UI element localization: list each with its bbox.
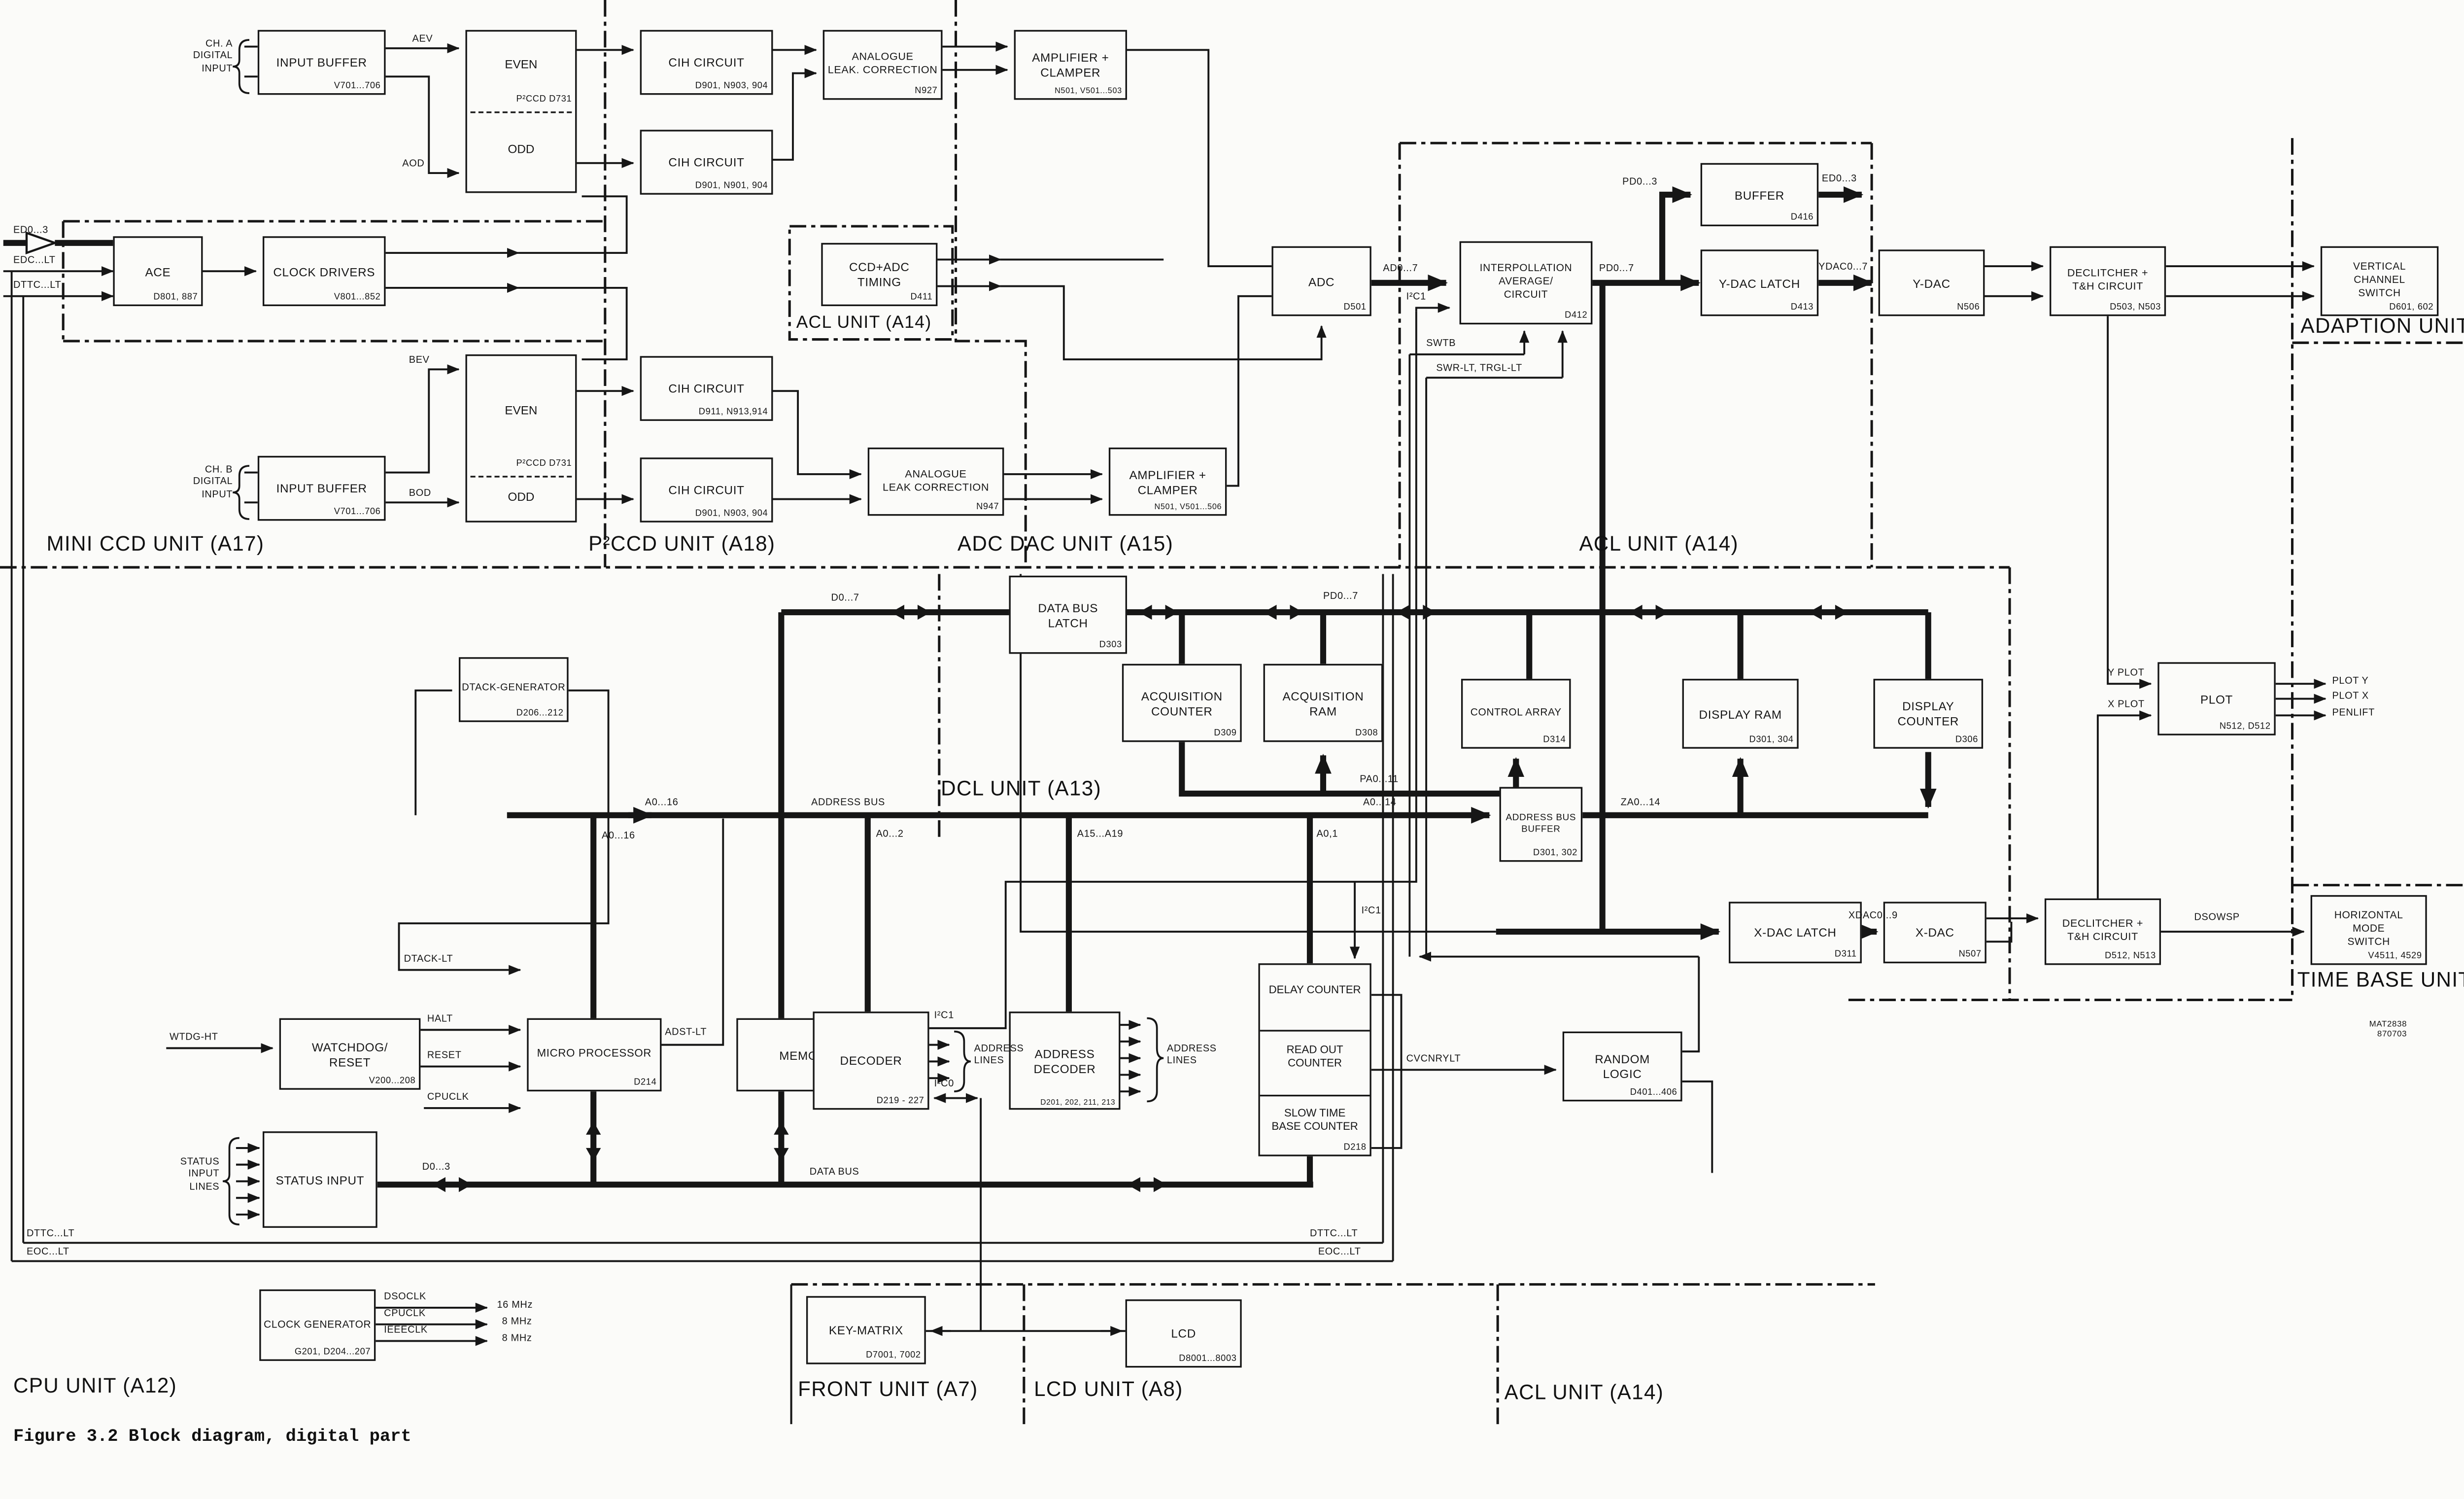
slow-time-base-counter-label: SLOW TIME BASE COUNTER <box>1260 1108 1370 1134</box>
even-section-label: EVEN <box>467 403 575 418</box>
block-horizontal-mode-switch: HORIZONTAL MODE SWITCH V4511, 4529 <box>2311 895 2427 965</box>
penlift-label: PENLIFT <box>2332 709 2374 721</box>
address-bus-label: ADDRESS BUS <box>811 799 885 811</box>
ydac0-7-label: YDAC0...7 <box>1818 263 1868 275</box>
dsowsp-label: DSOWSP <box>2194 913 2239 926</box>
counter-divider <box>1260 1030 1370 1031</box>
block-clock-generator: CLOCK GENERATOR G201, D204...207 <box>259 1290 376 1361</box>
block-data-bus-latch: DATA BUS LATCH D303 <box>1009 576 1127 654</box>
data-bus-label: DATA BUS <box>810 1168 859 1180</box>
block-watchdog-reset: WATCHDOG/ RESET V200...208 <box>279 1018 421 1090</box>
block-dtack-generator: DTACK-GENERATOR D206...212 <box>459 657 569 722</box>
counter-divider <box>1260 1095 1370 1096</box>
pa0-11-label: PA0...11 <box>1360 775 1399 788</box>
a0-16-bus-label: A0...16 <box>645 799 679 811</box>
even-odd-divider <box>471 111 572 113</box>
block-adc: ADC D501 <box>1271 246 1371 316</box>
freq-8mhz-label-2: 8 MHz <box>502 1334 532 1347</box>
block-lcd: LCD D8001...8003 <box>1126 1299 1242 1367</box>
reset-label: RESET <box>427 1051 462 1064</box>
dttc-lt-bottom-right-label: DTTC...LT <box>1310 1229 1358 1242</box>
y-plot-label: Y PLOT <box>2108 669 2144 681</box>
block-input-buffer-b: INPUT BUFFER V701...706 <box>258 456 386 521</box>
p2ccd-part: P²CCD D731 <box>516 459 572 469</box>
delay-counter-label: DELAY COUNTER <box>1260 985 1370 998</box>
status-input-lines-label: STATUS INPUT LINES <box>156 1158 219 1195</box>
block-clock-drivers: CLOCK DRIVERS V801...852 <box>263 236 386 306</box>
dtack-lt-label: DTACK-LT <box>404 955 453 967</box>
x-plot-label: X PLOT <box>2108 700 2145 713</box>
unit-label-acl-top: ACL UNIT (A14) <box>796 313 932 333</box>
block-x-dac-latch: X-DAC LATCH D311 <box>1729 902 1862 963</box>
ieeeclk-label: IEEECLK <box>384 1326 428 1338</box>
block-display-counter: DISPLAY COUNTER D306 <box>1873 679 1983 749</box>
d0-3-label: D0...3 <box>422 1163 450 1175</box>
figure-caption: Figure 3.2 Block diagram, digital part <box>13 1428 411 1448</box>
block-counters: DELAY COUNTER READ OUT COUNTER SLOW TIME… <box>1258 963 1371 1156</box>
address-lines-label-2: ADDRESS LINES <box>1167 1045 1217 1070</box>
block-cih-circuit-a2: CIH CIRCUIT D901, N901, 904 <box>640 130 773 195</box>
block-cih-circuit-b2: CIH CIRCUIT D901, N903, 904 <box>640 457 773 523</box>
unit-label-adaption: ADAPTION UNIT (A16) <box>2300 314 2464 338</box>
freq-16mhz-label: 16 MHz <box>497 1301 533 1313</box>
i2c1-delay-label: I²C1 <box>1362 906 1381 919</box>
unit-label-cpu: CPU UNIT (A12) <box>13 1374 177 1397</box>
block-cih-circuit-b1: CIH CIRCUIT D911, N913,914 <box>640 356 773 421</box>
unit-label-acl-mid: ACL UNIT (A14) <box>1579 532 1739 556</box>
a0-2-label: A0...2 <box>876 830 904 842</box>
block-analogue-leak-correction-b: ANALOGUE LEAK CORRECTION N947 <box>868 448 1004 516</box>
a0-16-riser-label: A0...16 <box>602 832 635 844</box>
dsoclk-label: DSOCLK <box>384 1293 426 1305</box>
block-status-input: STATUS INPUT <box>263 1131 377 1228</box>
ed0-3-right-label: ED0...3 <box>1822 174 1857 187</box>
block-y-dac: Y-DAC N506 <box>1879 249 1985 316</box>
block-declitcher-th-y: DECLITCHER + T&H CIRCUIT D503, N503 <box>2050 246 2166 316</box>
block-diagram: INPUT BUFFER V701...706 EVEN P²CCD D731 … <box>0 0 2464 1499</box>
edc-lt-label: EDC...LT <box>13 256 56 269</box>
wtdg-ht-label: WTDG-HT <box>170 1033 218 1046</box>
xdac0-9-label: XDAC0...9 <box>1848 912 1898 924</box>
a0-1-label: A0,1 <box>1316 830 1338 842</box>
block-buffer: BUFFER D416 <box>1701 163 1818 226</box>
ch-b-input-label: CH. B DIGITAL INPUT <box>173 466 233 503</box>
unit-label-acl-bottom: ACL UNIT (A14) <box>1505 1381 1664 1404</box>
block-ccd-adc-timing: CCD+ADC TIMING D411 <box>821 243 937 306</box>
block-ace: ACE D801, 887 <box>113 236 203 306</box>
block-y-dac-latch: Y-DAC LATCH D413 <box>1701 249 1818 316</box>
block-input-buffer-a: INPUT BUFFER V701...706 <box>258 30 386 95</box>
za0-14-label: ZA0...14 <box>1621 799 1661 811</box>
unit-label-dcl: DCL UNIT (A13) <box>941 777 1101 800</box>
halt-label: HALT <box>427 1015 453 1027</box>
plot-y-label: PLOT Y <box>2332 677 2368 690</box>
block-decoder: DECODER D219 - 227 <box>813 1011 929 1110</box>
even-odd-divider <box>471 476 572 477</box>
swtb-label: SWTB <box>1426 340 1456 352</box>
block-amplifier-clamper-b: AMPLIFIER + CLAMPER N501, V501...506 <box>1109 448 1227 516</box>
i2c1-adc-label: I²C1 <box>1406 293 1426 305</box>
block-vertical-channel-switch: VERTICAL CHANNEL SWITCH D601, 602 <box>2321 246 2438 316</box>
swr-lt-trgl-lt-label: SWR-LT, TRGL-LT <box>1436 364 1522 377</box>
block-p2ccd-a: EVEN P²CCD D731 ODD <box>465 30 577 193</box>
block-x-dac: X-DAC N507 <box>1883 902 1986 963</box>
aod-label: AOD <box>402 160 424 172</box>
cvcnrylt-label: CVCNRYLT <box>1406 1055 1461 1067</box>
unit-label-time-base: TIME BASE UNIT (A4) <box>2297 968 2464 991</box>
ad0-7-label: AD0...7 <box>1383 265 1418 277</box>
bod-label: BOD <box>409 489 431 501</box>
pd0-7-bus-label: PD0...7 <box>1323 593 1358 605</box>
block-address-bus-buffer: ADDRESS BUS BUFFER D301, 302 <box>1500 787 1583 862</box>
plot-x-label: PLOT X <box>2332 692 2368 704</box>
cpuclk-in-label: CPUCLK <box>427 1093 469 1106</box>
block-declitcher-th-x: DECLITCHER + T&H CIRCUIT D512, N513 <box>2045 899 2161 965</box>
block-acquisition-ram: ACQUISITION RAM D308 <box>1264 664 1383 742</box>
block-micro-processor: MICRO PROCESSOR D214 <box>527 1018 661 1092</box>
doc-number-label: MAT2838 870703 <box>2344 1020 2407 1041</box>
a0-14-label: A0...14 <box>1363 799 1397 811</box>
unit-label-p2ccd: P²CCD UNIT (A18) <box>588 532 775 556</box>
unit-label-front: FRONT UNIT (A7) <box>798 1378 978 1401</box>
block-acquisition-counter: ACQUISITION COUNTER D309 <box>1122 664 1242 742</box>
block-analogue-leak-correction-a: ANALOGUE LEAK. CORRECTION N927 <box>823 30 943 100</box>
i2c0-label: I²C0 <box>934 1080 954 1092</box>
eoc-lt-bottom-right-label: EOC...LT <box>1318 1248 1361 1260</box>
block-address-decoder: ADDRESS DECODER D201, 202, 211, 213 <box>1009 1011 1120 1110</box>
ch-a-input-label: CH. A DIGITAL INPUT <box>173 40 233 77</box>
pd0-7-top-label: PD0...7 <box>1599 265 1634 277</box>
adst-lt-label: ADST-LT <box>665 1028 707 1041</box>
aev-label: AEV <box>412 35 433 47</box>
block-p2ccd-b: EVEN P²CCD D731 ODD <box>465 354 577 523</box>
unit-label-adc-dac: ADC DAC UNIT (A15) <box>958 532 1173 556</box>
i2c1-decoder-label: I²C1 <box>934 1011 954 1024</box>
dttc-lt-bottom-left-label: DTTC...LT <box>27 1229 74 1242</box>
address-lines-label-1: ADDRESS LINES <box>974 1045 1024 1070</box>
block-random-logic: RANDOM LOGIC D401...406 <box>1563 1032 1682 1102</box>
even-section-label: EVEN <box>467 57 575 71</box>
block-key-matrix: KEY-MATRIX D7001, 7002 <box>806 1296 926 1364</box>
block-control-array: CONTROL ARRAY D314 <box>1461 679 1571 749</box>
ed0-3-left-label: ED0...3 <box>13 226 48 239</box>
pd0-3-label: PD0...3 <box>1622 178 1657 190</box>
unit-label-mini-ccd: MINI CCD UNIT (A17) <box>46 532 264 556</box>
p2ccd-part: P²CCD D731 <box>516 95 572 105</box>
d0-7-label: D0...7 <box>831 594 859 606</box>
odd-section-label: ODD <box>467 489 575 504</box>
cpuclk-out-label: CPUCLK <box>384 1309 426 1322</box>
wiring-layer <box>0 0 2464 1499</box>
block-cih-circuit-a1: CIH CIRCUIT D901, N903, 904 <box>640 30 773 95</box>
bev-label: BEV <box>409 356 430 368</box>
dttc-lt-top-label: DTTC...LT <box>13 281 61 293</box>
unit-label-lcd: LCD UNIT (A8) <box>1034 1378 1183 1401</box>
read-out-counter-label: READ OUT COUNTER <box>1260 1045 1370 1071</box>
odd-section-label: ODD <box>467 141 575 156</box>
block-plot: PLOT N512, D512 <box>2157 662 2275 735</box>
a15-a19-label: A15...A19 <box>1077 830 1123 842</box>
block-display-ram: DISPLAY RAM D301, 304 <box>1682 679 1799 749</box>
block-interpollation-average-circuit: INTERPOLLATION AVERAGE/ CIRCUIT D412 <box>1460 241 1593 324</box>
eoc-lt-bottom-left-label: EOC...LT <box>27 1248 69 1260</box>
block-amplifier-clamper-a: AMPLIFIER + CLAMPER N501, V501...503 <box>1014 30 1127 100</box>
freq-8mhz-label-1: 8 MHz <box>502 1318 532 1330</box>
